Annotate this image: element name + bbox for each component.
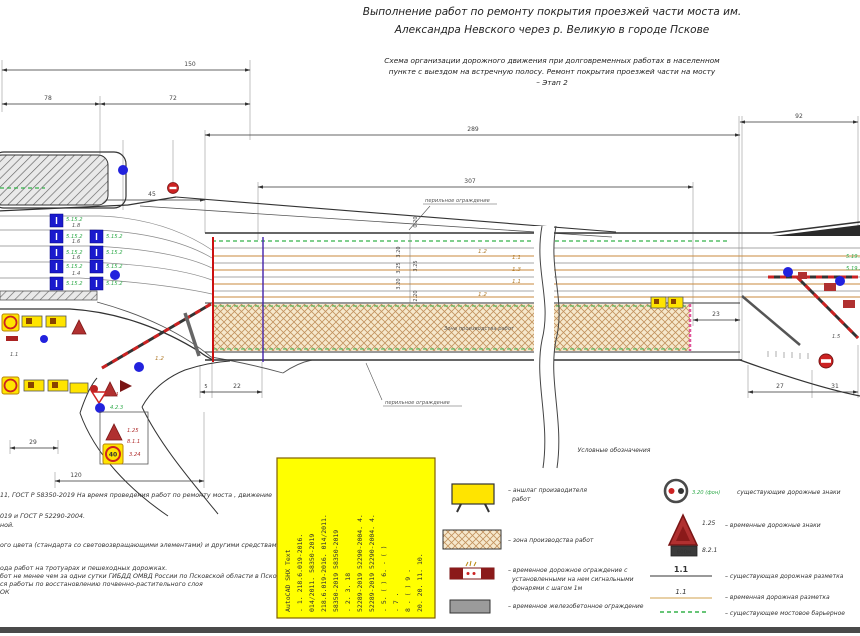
svg-text:5.15.2: 5.15.2: [66, 281, 83, 287]
svg-text:5.15.2: 5.15.2: [106, 234, 123, 240]
crosswalk-hatch: [0, 291, 97, 300]
dim-22: 22: [233, 383, 241, 390]
stamp-line: . 5. ( ) 6. - ( ): [380, 545, 388, 612]
marking-label: 1.2: [478, 249, 487, 255]
lane-width: 1.4: [72, 271, 80, 277]
legend-fence-text-3: фонарями с шагом 1м: [512, 585, 583, 592]
svg-text:3.25: 3.25: [396, 262, 402, 273]
dim-5: 5: [204, 384, 207, 390]
legend-fence-text: – временное дорожное ограждение с: [508, 567, 628, 574]
svg-text:5.15.2: 5.15.2: [106, 264, 123, 270]
subtitle-1: Схема организации дорожного движения при…: [384, 56, 720, 65]
stamp-line: 20. 20. 11. 10.: [416, 553, 424, 612]
stamp-line: . 1. 218.6.019-2016.: [296, 534, 304, 612]
dim-29: 29: [29, 439, 37, 446]
railing-label-bottom: перильное ограждение: [385, 400, 450, 406]
lane-width: 1.6: [72, 239, 81, 245]
legend-concrete-icon: [450, 600, 490, 613]
marking-label: 1.2: [478, 292, 487, 298]
work-zone-label: Зона производства работ: [444, 326, 515, 332]
dim-45: 45: [148, 191, 156, 198]
svg-text:3.20: 3.20: [396, 278, 402, 289]
svg-text:3.20: 3.20: [396, 246, 402, 257]
stamp-line: . 7 .: [392, 592, 400, 612]
red-circle-sign: [168, 183, 179, 194]
lane-width: 1.8: [72, 223, 81, 229]
stamp-line: 58350-2019 58350-2019: [332, 530, 340, 612]
subtitle-2: пункте с выездом на встречную полосу. Ре…: [389, 67, 716, 76]
marking-1-1-left: 1.1: [10, 352, 18, 358]
sign-3-24-label: 3.24: [129, 452, 141, 458]
note-line: ого цвета (стандарта со световозвращающи…: [0, 542, 281, 549]
page-title: Выполнение работ по ремонту покрытия про…: [363, 6, 741, 18]
stamp-line: 52289-2019 52290-2004. 4.: [368, 514, 376, 612]
traffic-scheme-canvas: Выполнение работ по ремонту покрытия про…: [0, 0, 860, 636]
autocad-shx-stamp: AutoCAD SHX Text . 1. 218.6.019-2016. 01…: [277, 458, 435, 618]
legend-exist-marking-text: – существующая дорожная разметка: [725, 573, 844, 580]
stamp-line: 8 . ( ) 9 .: [404, 569, 412, 612]
legend-board-text-2: работ: [511, 496, 531, 503]
note-line: 11, ГОСТ Р 58350-2019 На время проведени…: [0, 491, 272, 499]
legend-bridge-barrier-text: – существующее мостовое барьерное: [725, 610, 845, 617]
sign-5191-label: 5.19.1: [846, 254, 860, 260]
dim-150: 150: [184, 61, 196, 68]
dim-72: 72: [169, 95, 177, 102]
legend-fence-text-2: установленными на нем сигнальными: [511, 576, 634, 583]
no-entry-sign: [819, 354, 833, 368]
dim-120: 120: [70, 472, 82, 479]
svg-text:3.25: 3.25: [413, 260, 419, 271]
sign-5192-label: 5.19.2: [846, 266, 860, 272]
drawing-sheet: Выполнение работ по ремонту покрытия про…: [0, 0, 860, 636]
sign-2-4-label: 2.4: [110, 392, 118, 398]
subtitle-stage: – Этап 2: [536, 78, 568, 87]
marking-label: 1.1: [512, 255, 521, 261]
legend-m11-exist: 1.1: [674, 565, 689, 574]
note-line: 019 и ГОСТ Р 52290-2004.: [0, 513, 85, 520]
sign-1-25-label: 1.25: [127, 428, 139, 434]
dim-23: 23: [712, 311, 720, 318]
stamp-line: 218.6.019-2016. 014/2011.: [320, 514, 328, 612]
dim-27: 27: [776, 383, 784, 390]
marking-1-5-right: 1.5: [832, 334, 841, 340]
legend-title: Условные обозначения: [578, 447, 651, 454]
stamp-line: . 2. 3. 18: [344, 573, 352, 612]
legend-board-text: – аншлаг производителя: [508, 487, 587, 494]
legend-temp-signs-text: – временные дорожные знаки: [725, 522, 821, 529]
svg-text:5.15.2: 5.15.2: [106, 250, 123, 256]
note-line: ОК: [0, 589, 10, 596]
marking-1-2-left: 1.2: [155, 356, 164, 362]
note-line: ся работы по восстановлению почвенно-рас…: [0, 580, 203, 588]
legend-concrete-text: – временное железобетонное ограждение: [508, 603, 644, 610]
marking-label: 1.3: [512, 267, 521, 273]
stamp-line: AutoCAD SHX Text: [284, 549, 292, 612]
legend-sign-320-label: 3.20 (фон): [692, 490, 720, 496]
stamp-line: 52289-2019 52290-2004. 4.: [356, 514, 364, 612]
legend-plate-600: 600м: [677, 550, 692, 556]
sign-4-2-3-label: 4.2.3: [110, 405, 123, 411]
legend-exist-signs-text: существующие дорожные знаки: [737, 489, 841, 496]
note-line: ной.: [0, 522, 14, 529]
svg-text:2.20: 2.20: [413, 290, 419, 301]
dim-289: 289: [467, 126, 479, 133]
sheet-bottom-edge: [0, 627, 860, 633]
sign-8-1-1-label: 8.1.1: [127, 439, 140, 445]
svg-text:0.20: 0.20: [413, 216, 419, 227]
legend-sign-821-label: 8.2.1: [702, 547, 717, 554]
dim-92: 92: [795, 113, 803, 120]
stamp-line: 014/2011. 58350-2019: [308, 534, 316, 612]
legend-m11-temp: 1.1: [675, 588, 686, 596]
legend-zone-icon: [443, 530, 501, 549]
note-line: ода работ на тротуарах и пешеходных доро…: [0, 564, 167, 572]
dim-307: 307: [464, 178, 476, 185]
legend-zone-text: – зона производства работ: [508, 537, 594, 544]
lane-width: 1.6: [72, 255, 81, 261]
legend-sign-125-label: 1.25: [702, 520, 716, 527]
legend-temp-marking-text: – временная дорожная разметка: [725, 594, 830, 601]
note-line: бот не менее чем за одни сутки ГИБДД ОМВ…: [0, 572, 286, 580]
marking-label: 1.1: [512, 279, 521, 285]
railing-label-top: перильное ограждение: [425, 198, 490, 204]
dim-78: 78: [44, 95, 52, 102]
page-title-2: Александра Невского через р. Великую в г…: [394, 24, 710, 36]
legend-sign-320-icon: [665, 480, 687, 502]
svg-text:5.15.2: 5.15.2: [66, 264, 83, 270]
speed-40-value: 40: [109, 452, 117, 459]
svg-text:5.15.2: 5.15.2: [106, 281, 123, 287]
